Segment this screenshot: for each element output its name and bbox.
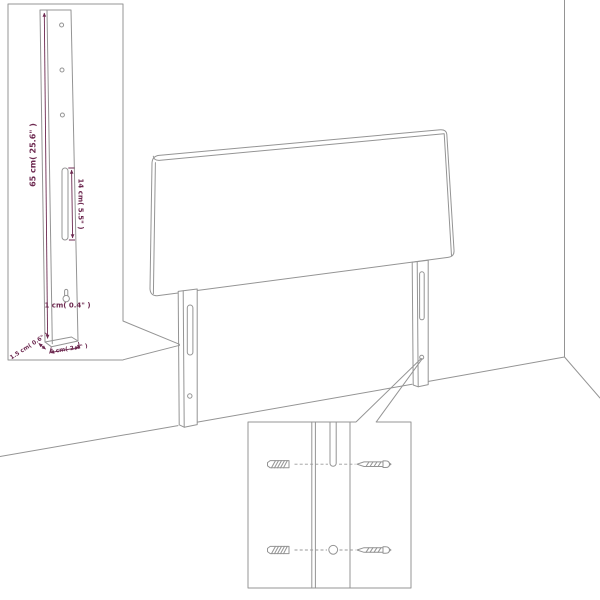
- headboard-leg-right: [412, 260, 428, 387]
- headboard-leg-left: [178, 289, 197, 427]
- mounting-detail-inset: [248, 422, 411, 588]
- dim-label-hole-diameter: 1 cm( 0.4" ): [45, 302, 91, 310]
- headboard-panel: [150, 130, 454, 296]
- callout-wedge-right: [356, 359, 422, 423]
- product-diagram: 65 cm( 25.6" ) 14 cm( 5.5" ) 1 cm( 0.4" …: [0, 0, 600, 600]
- dim-label-leg-height: 65 cm( 25.6" ): [29, 123, 38, 187]
- leg-detail-inset: 65 cm( 25.6" ) 14 cm( 5.5" ) 1 cm( 0.4" …: [8, 4, 123, 361]
- floor-line-right: [565, 357, 600, 398]
- dim-label-slot-length: 14 cm( 5.5" ): [77, 179, 85, 230]
- leg-right-outline: [412, 260, 428, 387]
- panel-outline: [150, 130, 454, 296]
- diagram-svg: 65 cm( 25.6" ) 14 cm( 5.5" ) 1 cm( 0.4" …: [0, 0, 600, 600]
- callout-wedge-left: [123, 321, 180, 360]
